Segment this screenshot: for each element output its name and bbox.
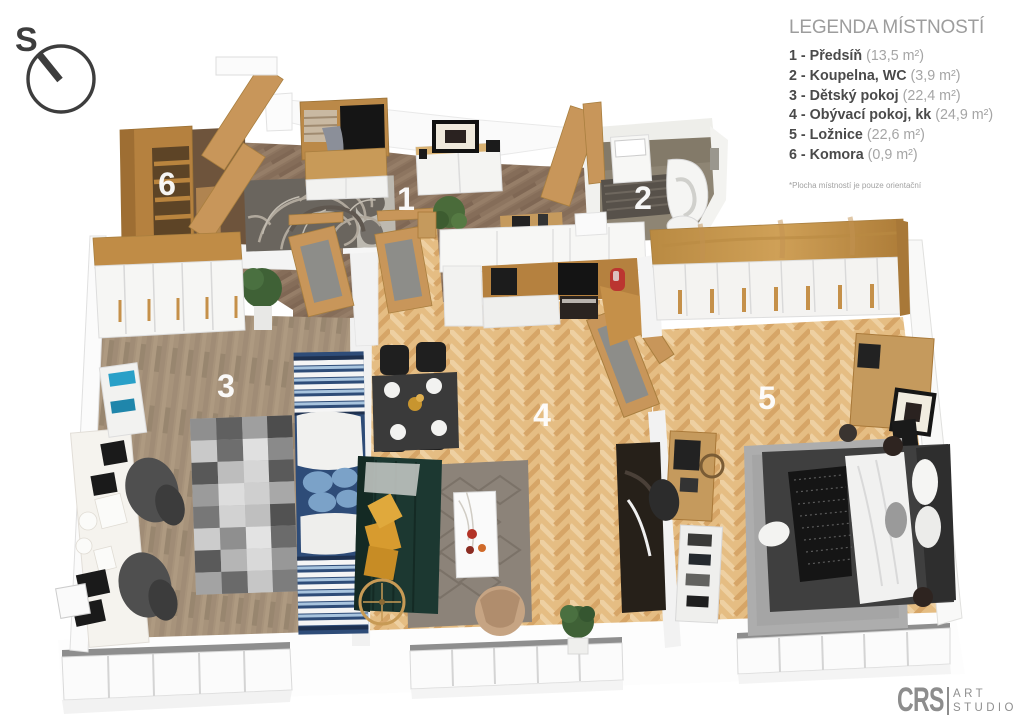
svg-text:5: 5 xyxy=(758,380,776,416)
svg-text:4: 4 xyxy=(533,397,551,433)
svg-text:S: S xyxy=(15,21,38,59)
svg-text:1: 1 xyxy=(397,181,415,217)
svg-text:3: 3 xyxy=(217,368,235,404)
svg-text:6: 6 xyxy=(158,166,176,202)
svg-text:2: 2 xyxy=(634,180,652,216)
